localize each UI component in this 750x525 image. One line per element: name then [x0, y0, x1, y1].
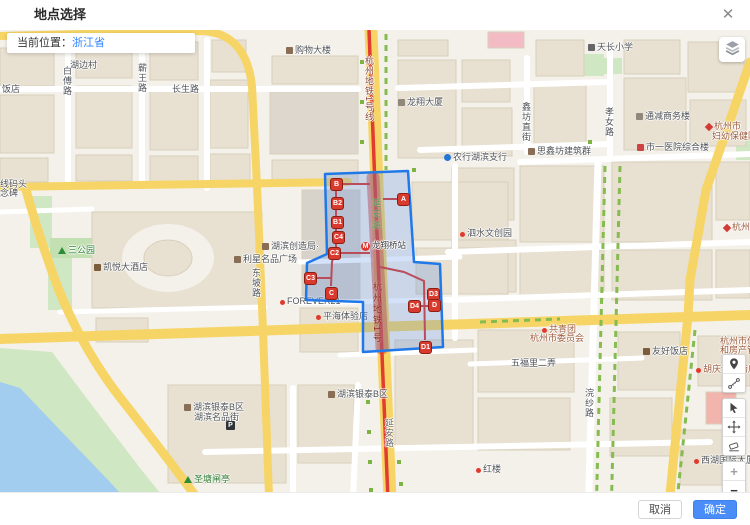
- dialog-footer: 取消 确定: [0, 492, 750, 525]
- metro-exit-marker-B1: B1: [331, 216, 344, 229]
- current-location-bar: 当前位置：浙江省: [7, 33, 195, 53]
- dialog-header: 地点选择 ✕: [0, 0, 750, 30]
- metro-exit-marker-D4: D4: [408, 300, 421, 313]
- location-pin-icon: [727, 357, 741, 371]
- location-pin-tool[interactable]: [723, 355, 745, 374]
- close-icon[interactable]: ✕: [716, 0, 740, 30]
- measure-distance-icon: [727, 376, 741, 390]
- tool-group: [722, 398, 746, 456]
- dialog-title: 地点选择: [34, 0, 86, 30]
- map-layers-icon: [724, 39, 741, 61]
- select-icon: [727, 401, 741, 415]
- map-canvas[interactable]: 饭店湖边村白傅路蕲王路长生路购物大楼天长小学孝女路通减商务楼杭州市妇幼保健院市一…: [0, 0, 750, 524]
- zoom-in-button[interactable]: +: [723, 462, 745, 481]
- metro-exit-marker-B2: B2: [331, 197, 344, 210]
- confirm-button[interactable]: 确定: [693, 500, 737, 519]
- eraser-icon: [727, 439, 741, 453]
- select-tool[interactable]: [723, 399, 745, 418]
- metro-exit-marker-D: D: [428, 299, 441, 312]
- metro-station-icon: M: [361, 242, 370, 251]
- eraser-tool[interactable]: [723, 437, 745, 455]
- metro-exit-marker-A: A: [397, 193, 410, 206]
- pan-icon: [727, 420, 741, 434]
- metro-exit-marker-B: B: [330, 178, 343, 191]
- road-band-label: 延安路: [370, 198, 383, 231]
- metro-exit-marker-C3: C3: [304, 272, 317, 285]
- metro-exit-marker-C2: C2: [328, 247, 341, 260]
- tool-group: [722, 354, 746, 393]
- pan-tool[interactable]: [723, 418, 745, 437]
- road-band-label: 杭州地铁1号: [371, 282, 384, 344]
- current-location-link[interactable]: 浙江省: [72, 37, 105, 49]
- layers-button[interactable]: [719, 37, 745, 62]
- metro-station-label: M龙翔桥站: [361, 239, 406, 251]
- current-location-prefix: 当前位置：: [17, 37, 72, 49]
- selection-overlay: [0, 0, 750, 524]
- metro-exit-marker-D1: D1: [419, 341, 432, 354]
- metro-exit-marker-C4: C4: [332, 231, 345, 244]
- metro-exit-marker-C: C: [325, 287, 338, 300]
- map-tool-stack: +−: [722, 354, 746, 505]
- measure-distance-tool[interactable]: [723, 374, 745, 392]
- cancel-button[interactable]: 取消: [638, 500, 682, 519]
